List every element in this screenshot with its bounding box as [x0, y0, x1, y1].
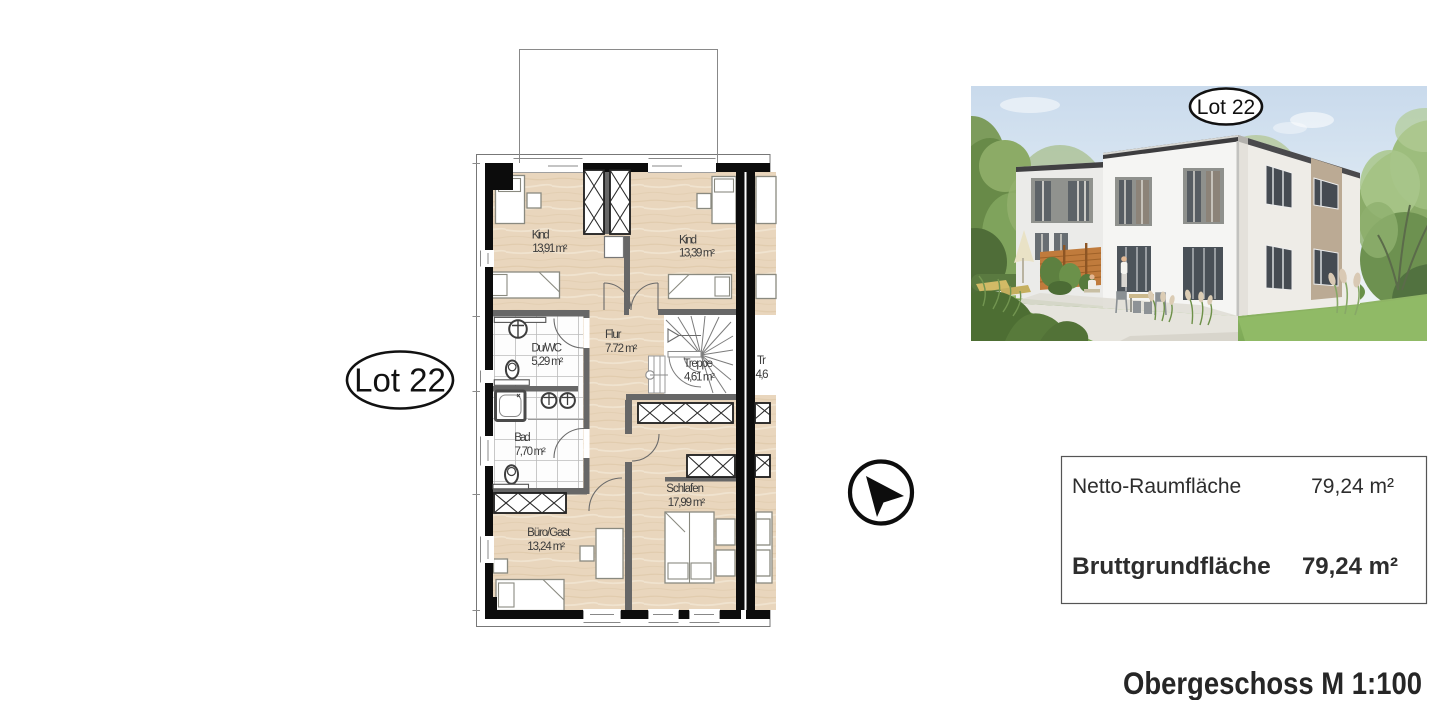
svg-text:Netto-Raumfläche: Netto-Raumfläche: [1072, 475, 1241, 498]
svg-text:13,24 m²: 13,24 m²: [527, 541, 565, 553]
svg-text:13,39 m²: 13,39 m²: [679, 248, 715, 260]
svg-text:Lot 22: Lot 22: [1197, 96, 1255, 119]
svg-text:7.72 m²: 7.72 m²: [605, 343, 638, 355]
svg-text:Tr: Tr: [757, 355, 766, 367]
svg-text:Lot 22: Lot 22: [354, 362, 446, 399]
svg-text:4,61 m²: 4,61 m²: [684, 372, 715, 384]
svg-text:Bad: Bad: [514, 432, 530, 444]
svg-text:17,99 m²: 17,99 m²: [668, 497, 706, 509]
svg-text:Büro/Gast: Büro/Gast: [527, 527, 571, 539]
svg-text:79,24 m²: 79,24 m²: [1302, 553, 1398, 580]
svg-text:Flur: Flur: [605, 329, 622, 341]
svg-text:Treppe: Treppe: [684, 358, 714, 370]
svg-text:5,29 m²: 5,29 m²: [531, 356, 563, 368]
svg-text:4,6: 4,6: [756, 369, 769, 381]
svg-text:79,24 m²: 79,24 m²: [1311, 475, 1394, 498]
svg-text:Du/WC: Du/WC: [531, 342, 562, 354]
svg-text:Kind: Kind: [679, 235, 697, 247]
svg-text:7,70 m²: 7,70 m²: [515, 446, 546, 458]
svg-text:Schlafen: Schlafen: [666, 483, 704, 495]
svg-text:Obergeschoss M 1:100: Obergeschoss M 1:100: [1123, 665, 1422, 700]
svg-text:13,91 m²: 13,91 m²: [532, 243, 567, 255]
svg-text:Bruttgrundfläche: Bruttgrundfläche: [1072, 553, 1271, 580]
svg-text:Kind: Kind: [532, 230, 550, 242]
